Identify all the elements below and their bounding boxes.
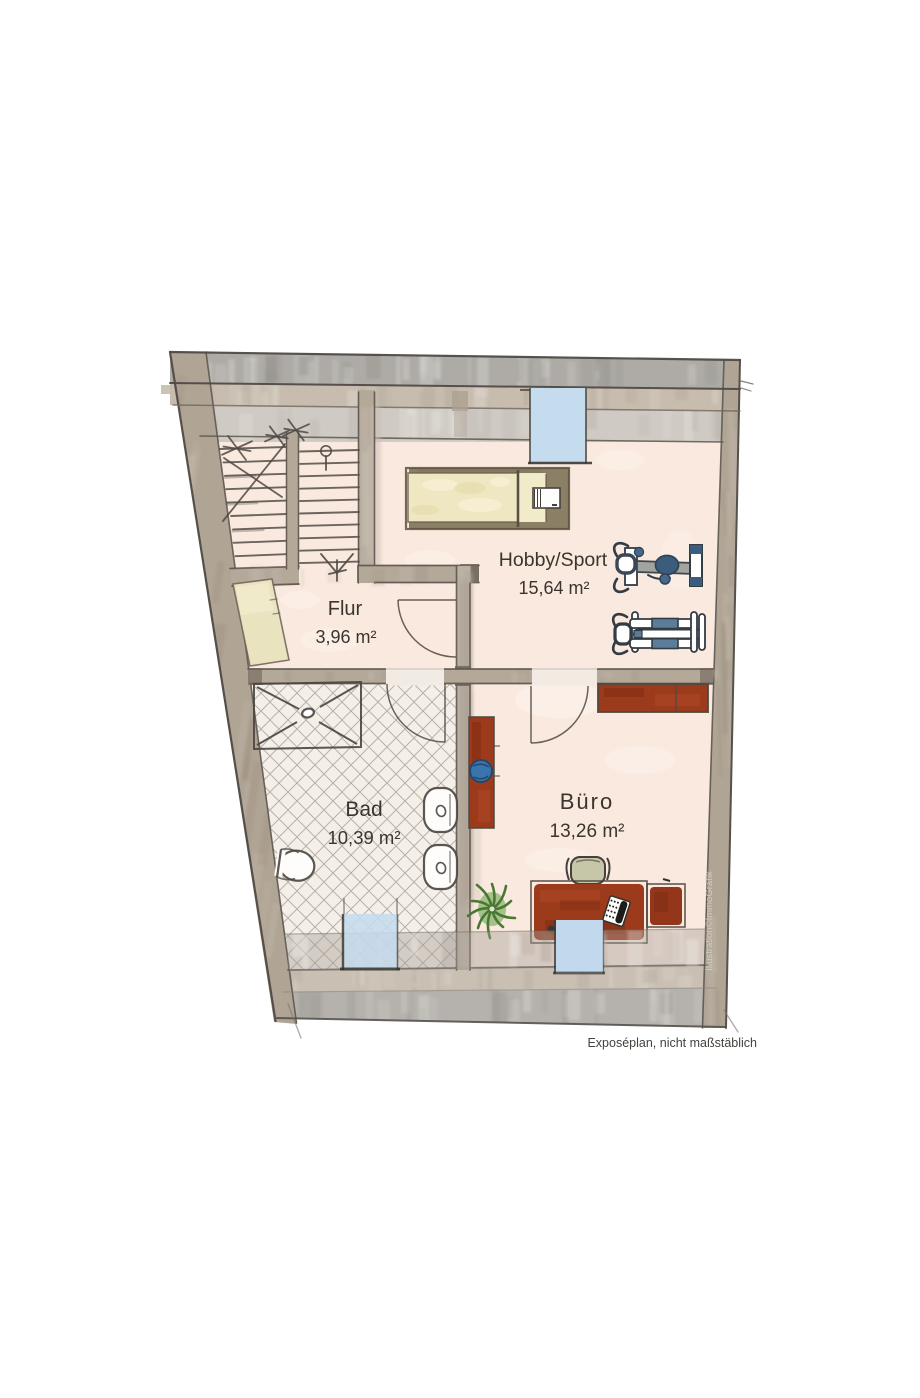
svg-text:Büro: Büro bbox=[560, 789, 614, 814]
svg-text:Bad: Bad bbox=[345, 798, 382, 821]
svg-text:Exposéplan, nicht maßstäblich: Exposéplan, nicht maßstäblich bbox=[587, 1036, 757, 1050]
svg-text:10,39 m²: 10,39 m² bbox=[327, 827, 400, 848]
svg-text:Illustration©ImmoGrafik: Illustration©ImmoGrafik bbox=[704, 871, 715, 971]
svg-text:13,26 m²: 13,26 m² bbox=[550, 821, 625, 842]
svg-text:3,96 m²: 3,96 m² bbox=[315, 627, 376, 647]
svg-text:Hobby/Sport: Hobby/Sport bbox=[499, 549, 608, 571]
svg-text:15,64 m²: 15,64 m² bbox=[518, 578, 589, 598]
svg-text:Flur: Flur bbox=[328, 598, 363, 620]
